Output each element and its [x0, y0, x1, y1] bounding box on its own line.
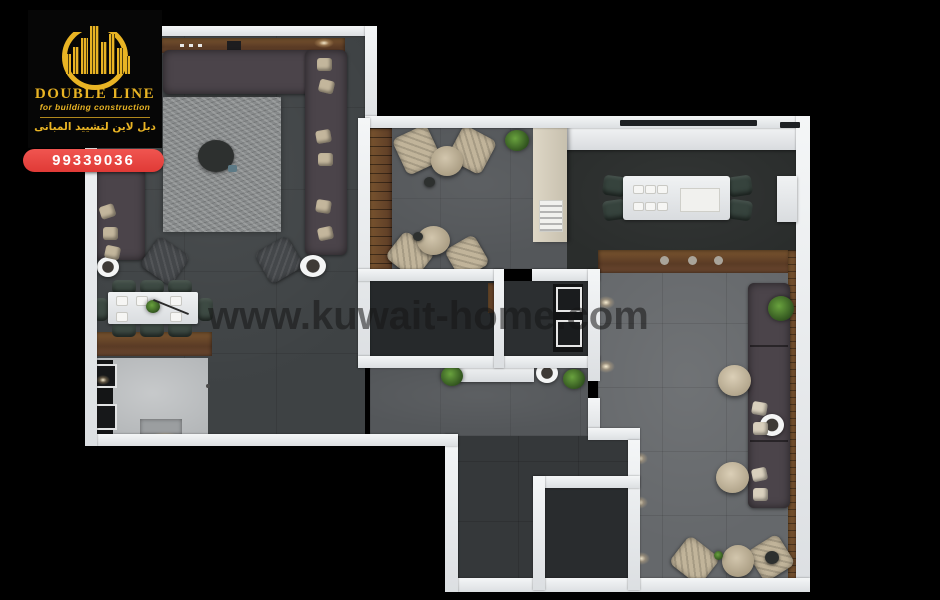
sideboard-knob	[714, 256, 723, 265]
sofa-seam	[750, 440, 788, 442]
pouf	[718, 365, 751, 396]
washing-machine	[95, 404, 117, 430]
sideboard-knob	[688, 256, 697, 265]
pillow	[315, 129, 332, 144]
kitchen-top-counter	[565, 128, 796, 150]
plate	[645, 202, 656, 211]
plate	[657, 202, 668, 211]
pouf	[716, 462, 749, 493]
dining-chair	[168, 322, 192, 337]
wall-right	[796, 116, 810, 592]
wall-majlis-jog	[588, 428, 640, 440]
pillow	[753, 488, 768, 501]
watermark: www.kuwait-home.com	[208, 294, 649, 339]
plant	[441, 366, 463, 386]
dining-chair	[727, 174, 754, 197]
wall-bottom-room-top	[533, 476, 640, 488]
company-tagline: for building construction	[28, 102, 162, 113]
dining-chair	[727, 198, 754, 221]
plate	[170, 312, 182, 322]
plate	[633, 202, 644, 211]
hall-bench	[458, 366, 534, 382]
floor-bottom-room	[545, 488, 628, 580]
pillow	[103, 227, 118, 240]
plate	[170, 296, 182, 306]
logo-divider	[40, 117, 150, 118]
logo-emblem	[28, 10, 162, 86]
sideboard-knob	[660, 256, 669, 265]
wall-bottom-room-right	[628, 440, 640, 590]
plant	[768, 296, 794, 321]
plant	[505, 130, 529, 151]
plate	[116, 312, 128, 322]
pillow	[751, 401, 768, 416]
floorplan-render: www.kuwait-home.com DOUBLE LINE for buil…	[0, 0, 940, 600]
door-knob	[206, 384, 210, 388]
pillow	[104, 245, 121, 261]
dining-chair	[140, 322, 164, 337]
round-side-table	[300, 255, 326, 277]
wall-corridor-left	[445, 434, 458, 592]
window-slot	[780, 122, 800, 128]
pillow	[753, 422, 768, 435]
plate	[116, 296, 128, 306]
plate	[657, 185, 668, 194]
company-logo: DOUBLE LINE for building construction دب…	[28, 10, 162, 148]
console-decor	[180, 44, 204, 47]
ceiling-light	[314, 38, 334, 48]
skyline-buildings-icon	[66, 26, 130, 74]
coffee-table-decor	[228, 165, 237, 172]
phone-badge: 99339036	[23, 149, 164, 172]
small-plant	[714, 551, 723, 560]
wall-rooms-top-a	[358, 269, 502, 281]
small-side-table	[413, 232, 423, 241]
dining-chair	[112, 322, 136, 337]
serving-tray	[680, 188, 720, 212]
wall-rooms-bottom	[358, 356, 600, 368]
right-wall-door	[777, 176, 797, 222]
wall-bottom-room-left	[533, 476, 545, 590]
small-side-table	[765, 551, 779, 564]
wall-notch-left	[365, 26, 377, 126]
round-lounge-table	[417, 226, 450, 255]
sofa-seam	[750, 345, 788, 347]
plate	[645, 185, 656, 194]
wall-bottom-left	[85, 434, 458, 446]
small-side-table	[424, 177, 435, 187]
island-tray	[539, 200, 563, 232]
round-majlis-table	[722, 545, 754, 577]
pillow	[315, 199, 332, 214]
window-slot	[620, 120, 757, 126]
plate	[633, 185, 644, 194]
wall-light	[96, 375, 110, 385]
pillow	[317, 58, 332, 71]
pillow	[318, 153, 333, 166]
round-lounge-table	[431, 146, 463, 176]
company-name-arabic: دبل لاين لتشييد المبانى	[28, 121, 162, 134]
plant	[563, 369, 585, 389]
